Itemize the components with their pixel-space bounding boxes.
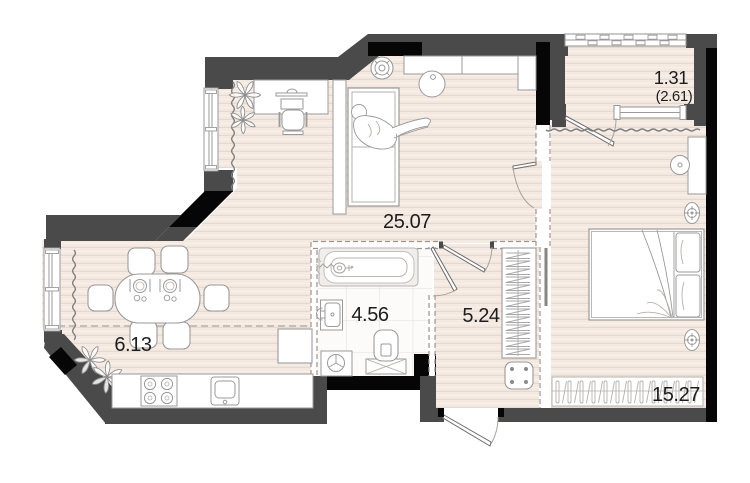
svg-text:5.24: 5.24 [462,305,500,327]
svg-text:15.27: 15.27 [652,384,700,406]
svg-text:4.56: 4.56 [351,304,389,326]
svg-text:(2.61): (2.61) [656,88,693,105]
svg-text:1.31: 1.31 [654,67,689,88]
svg-text:25.07: 25.07 [383,211,431,233]
svg-text:6.13: 6.13 [114,334,152,356]
